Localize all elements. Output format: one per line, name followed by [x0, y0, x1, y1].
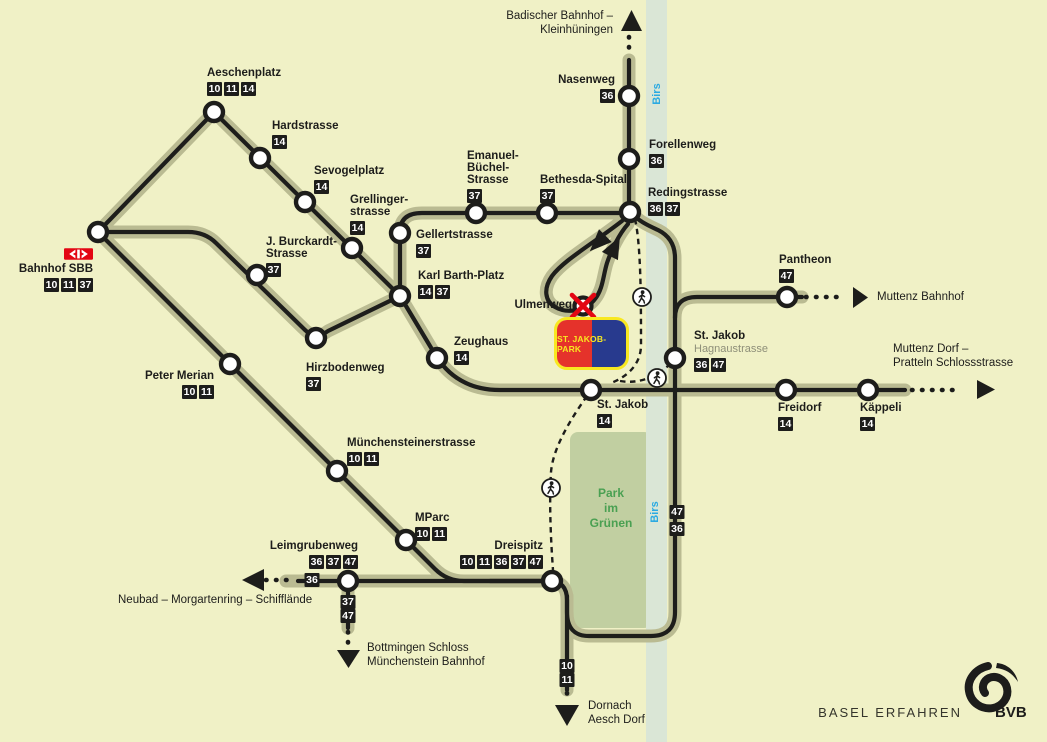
line-number-badges: 1437 [418, 285, 504, 299]
line-badge-36: 36 [309, 555, 324, 569]
station-label-bethesda-spital: Bethesda-Spital37 [540, 174, 627, 203]
station-label-grellingerstrasse: Grellinger-strasse14 [350, 194, 408, 235]
line-badge-14: 14 [778, 417, 793, 431]
station-name: strasse [350, 206, 408, 218]
station-label-redingstrasse: Redingstrasse3637 [648, 187, 727, 216]
station-label-freidorf: Freidorf14 [778, 402, 821, 431]
line-number-badges: 36 [558, 89, 615, 103]
station-label-bahnhof-sbb: Bahnhof SBB101137 [19, 248, 93, 292]
line-badge-14: 14 [597, 414, 612, 428]
station-label-aeschenplatz: Aeschenplatz101114 [207, 67, 281, 96]
line-number-badges: 37 [306, 377, 385, 391]
line-badge-14: 14 [241, 82, 256, 96]
line-badge-14: 14 [350, 221, 365, 235]
station-labels: Aeschenplatz101114Hardstrasse14Sevogelpl… [0, 0, 1047, 742]
line-badge-10: 10 [44, 278, 59, 292]
line-number-badges: 14 [350, 221, 408, 235]
line-number-badges: 14 [454, 351, 508, 365]
station-label-hirzbodenweg: Hirzbodenweg37 [306, 362, 385, 391]
station-name: Münchensteinerstrasse [347, 437, 475, 449]
line-badge-47: 47 [779, 269, 794, 283]
station-name: Leimgrubenweg [270, 540, 358, 552]
line-badge-37: 37 [665, 202, 680, 216]
station-name: Dreispitz [460, 540, 543, 552]
line-number-badges: 14 [597, 414, 648, 428]
online-badge-36: 36 [305, 573, 320, 587]
line-badge-14: 14 [454, 351, 469, 365]
line-number-badges: 101137 [19, 278, 93, 292]
station-label-hardstrasse: Hardstrasse14 [272, 120, 338, 149]
station-label-forellenweg: Forellenweg36 [649, 139, 716, 168]
line-badge-37: 37 [326, 555, 341, 569]
line-number-badges: 1011 [415, 527, 450, 541]
online-badge-47: 47 [341, 609, 356, 623]
station-name: Pantheon [779, 254, 831, 266]
line-badge-36: 36 [648, 202, 663, 216]
station-label-st-jakob-hagnaustrasse: St. JakobHagnaustrasse3647 [694, 330, 768, 372]
station-label-emanuel-buechel-strasse: Emanuel-Büchel-Strasse37 [467, 150, 519, 203]
line-badge-14: 14 [860, 417, 875, 431]
line-number-badges: 3647 [694, 358, 768, 372]
online-badge-11: 11 [560, 673, 575, 687]
line-number-badges: 1011 [145, 385, 214, 399]
station-name: Aeschenplatz [207, 67, 281, 79]
line-number-badges: 37 [467, 189, 519, 203]
line-badge-10: 10 [415, 527, 430, 541]
line-number-badges: 14 [860, 417, 902, 431]
line-badge-37: 37 [540, 189, 555, 203]
station-label-zeughaus: Zeughaus14 [454, 336, 508, 365]
station-subtitle: Hagnaustrasse [694, 343, 768, 355]
station-name: Strasse [266, 248, 337, 260]
line-badge-36: 36 [649, 154, 664, 168]
line-badge-10: 10 [207, 82, 222, 96]
station-name: Büchel- [467, 162, 519, 174]
line-badge-36: 36 [600, 89, 615, 103]
line-badge-47: 47 [528, 555, 543, 569]
station-label-dreispitz: Dreispitz1011363747 [460, 540, 543, 569]
line-badge-14: 14 [272, 135, 287, 149]
line-number-badges: 1011 [347, 452, 475, 466]
online-badge-10: 10 [560, 659, 575, 673]
line-badge-37: 37 [435, 285, 450, 299]
line-badge-36: 36 [494, 555, 509, 569]
line-number-badges: 1011363747 [460, 555, 543, 569]
station-name: Bahnhof SBB [19, 263, 93, 275]
line-number-badges: 37 [266, 263, 337, 277]
line-badge-37: 37 [78, 278, 93, 292]
station-name: Bethesda-Spital [540, 174, 627, 186]
station-name: Strasse [467, 174, 519, 186]
station-label-leimgrubenweg: Leimgrubenweg363747 [270, 540, 358, 569]
station-name: St. Jakob [597, 399, 648, 411]
line-badge-11: 11 [432, 527, 447, 541]
line-number-badges: 36 [649, 154, 716, 168]
station-name: MParc [415, 512, 450, 524]
line-number-badges: 3637 [648, 202, 727, 216]
station-label-mparc: MParc1011 [415, 512, 450, 541]
station-name: Emanuel- [467, 150, 519, 162]
line-number-badges: 14 [314, 180, 384, 194]
station-label-j-burckardt-strasse: J. Burckardt-Strasse37 [266, 236, 337, 277]
online-badge-47: 47 [670, 505, 685, 519]
line-badge-47: 47 [711, 358, 726, 372]
line-badge-37: 37 [511, 555, 526, 569]
line-badge-14: 14 [418, 285, 433, 299]
station-name: Forellenweg [649, 139, 716, 151]
station-name: J. Burckardt- [266, 236, 337, 248]
line-number-badges: 101114 [207, 82, 281, 96]
line-badge-37: 37 [467, 189, 482, 203]
station-name: Sevogelplatz [314, 165, 384, 177]
online-badge-37: 37 [341, 595, 356, 609]
station-name: Nasenweg [558, 74, 615, 86]
station-label-st-jakob: St. Jakob14 [597, 399, 648, 428]
online-badge-36: 36 [670, 522, 685, 536]
line-badge-37: 37 [416, 244, 431, 258]
line-number-badges: 37 [416, 244, 493, 258]
station-name: Hirzbodenweg [306, 362, 385, 374]
station-name: Zeughaus [454, 336, 508, 348]
line-number-badges: 363747 [270, 555, 358, 569]
station-label-peter-merian: Peter Merian1011 [145, 370, 214, 399]
station-name: Peter Merian [145, 370, 214, 382]
station-name: St. Jakob [694, 330, 768, 342]
line-badge-10: 10 [182, 385, 197, 399]
line-badge-36: 36 [694, 358, 709, 372]
station-name: Hardstrasse [272, 120, 338, 132]
line-number-badges: 37 [540, 189, 627, 203]
station-label-sevogelplatz: Sevogelplatz14 [314, 165, 384, 194]
line-badge-11: 11 [61, 278, 76, 292]
bvb-network-map: Park im Grünen Birs Birs [0, 0, 1047, 742]
station-name: Redingstrasse [648, 187, 727, 199]
station-label-gellertstrasse: Gellertstrasse37 [416, 229, 493, 258]
station-name: Freidorf [778, 402, 821, 414]
station-name: Karl Barth-Platz [418, 270, 504, 282]
station-label-nasenweg: Nasenweg36 [558, 74, 615, 103]
line-badge-11: 11 [364, 452, 379, 466]
station-name: Käppeli [860, 402, 902, 414]
station-name: Grellinger- [350, 194, 408, 206]
line-number-badges: 47 [779, 269, 831, 283]
line-badge-37: 37 [306, 377, 321, 391]
station-label-muenchensteinerstrasse: Münchensteinerstrasse1011 [347, 437, 475, 466]
line-badge-14: 14 [314, 180, 329, 194]
sbb-railway-icon [64, 248, 93, 260]
station-name: Gellertstrasse [416, 229, 493, 241]
line-badge-11: 11 [477, 555, 492, 569]
station-label-kaeppeli: Käppeli14 [860, 402, 902, 431]
line-badge-10: 10 [347, 452, 362, 466]
line-badge-37: 37 [266, 263, 281, 277]
line-badge-47: 47 [343, 555, 358, 569]
line-number-badges: 14 [778, 417, 821, 431]
station-label-pantheon: Pantheon47 [779, 254, 831, 283]
line-badge-11: 11 [224, 82, 239, 96]
line-number-badges: 14 [272, 135, 338, 149]
line-badge-10: 10 [460, 555, 475, 569]
line-badge-11: 11 [199, 385, 214, 399]
station-label-karl-barth-platz: Karl Barth-Platz1437 [418, 270, 504, 299]
